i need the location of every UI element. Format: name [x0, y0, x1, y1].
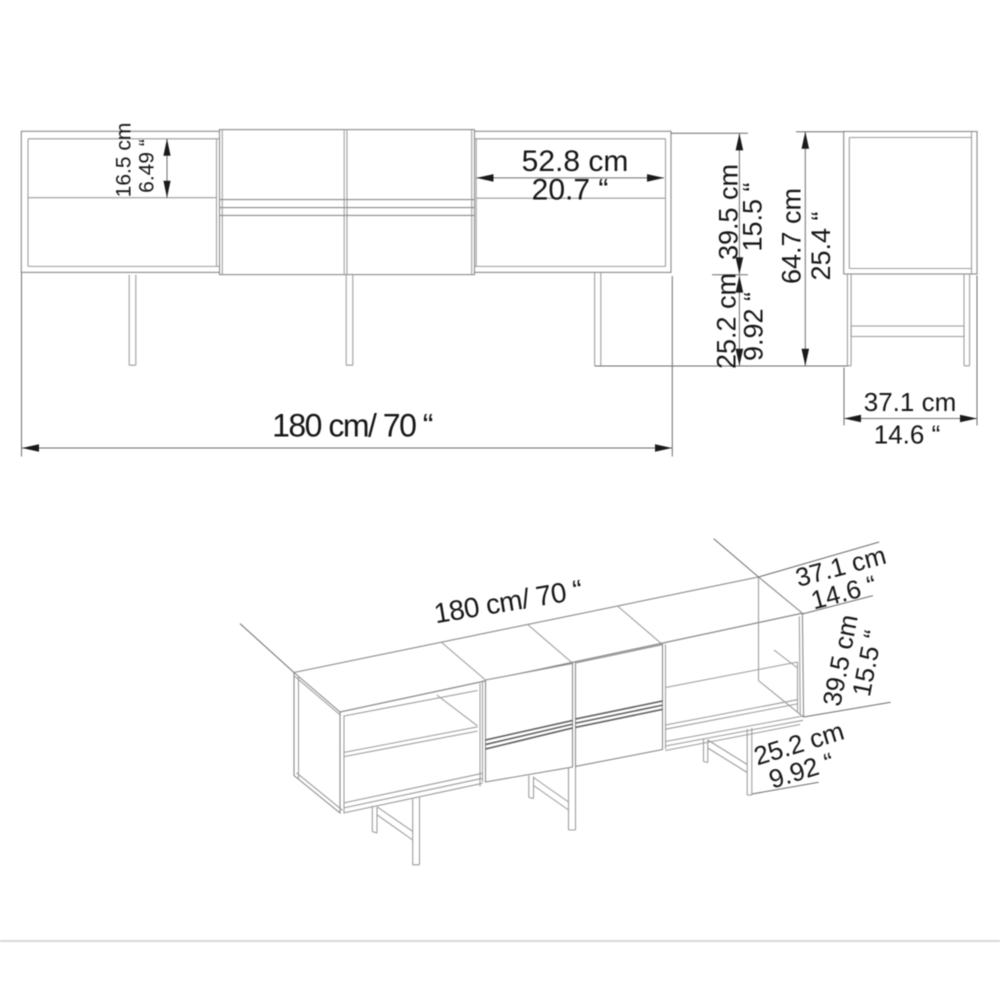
svg-text:9.92 “: 9.92 “ — [739, 292, 769, 361]
svg-text:25.2 cm: 25.2 cm — [712, 273, 742, 369]
svg-text:64.7 cm: 64.7 cm — [777, 188, 807, 284]
svg-text:20.7 “: 20.7 “ — [532, 174, 609, 207]
svg-text:16.5 cm: 16.5 cm — [113, 123, 136, 198]
svg-text:14.6 “: 14.6 “ — [874, 420, 941, 450]
svg-text:180 cm/ 70 “: 180 cm/ 70 “ — [272, 408, 433, 444]
svg-text:37.1 cm: 37.1 cm — [864, 387, 957, 417]
svg-text:15.5 “: 15.5 “ — [738, 182, 768, 251]
svg-text:6.49 “: 6.49 “ — [136, 139, 159, 193]
svg-text:25.4 “: 25.4 “ — [806, 211, 836, 280]
